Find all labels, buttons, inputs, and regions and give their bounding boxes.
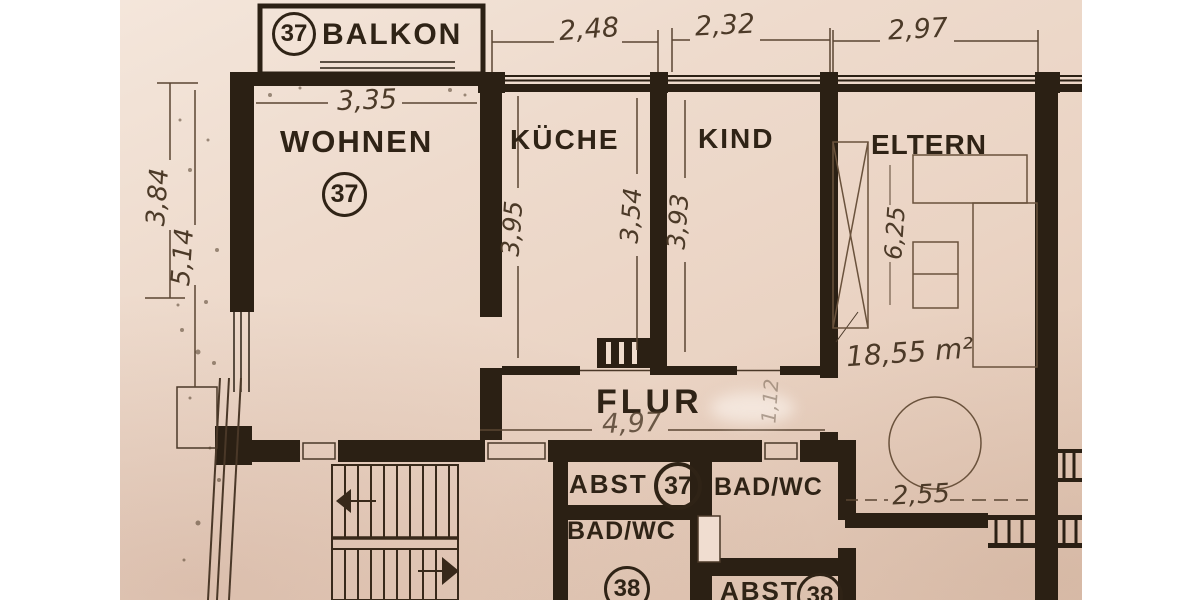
stair-arrow-down (442, 557, 459, 585)
room-label-eltern: ELTERN (871, 129, 987, 161)
room-label-badwc37: BAD/WC (714, 473, 823, 502)
dim-kind-depth: 3,93 (661, 181, 696, 263)
dim-flur-length: 4,97 (597, 407, 666, 440)
abst37-unit-badge: 37 (654, 462, 702, 510)
kitchen-sink-symbol (597, 338, 653, 368)
room-label-kueche: KÜCHE (510, 124, 620, 156)
staircase (332, 465, 459, 600)
bed (973, 203, 1037, 367)
room-label-badwc38: BAD/WC (567, 517, 676, 546)
room-label-kind: KIND (698, 123, 774, 155)
scanned-paper: 37 BALKON WOHNEN 37 KÜCHE KIND ELTERN FL… (120, 0, 1082, 600)
dim-wohnen-width: 3,35 (331, 84, 402, 117)
floorplan-photo: 37 BALKON WOHNEN 37 KÜCHE KIND ELTERN FL… (0, 0, 1200, 600)
dim-top-eltern: 2,97 (885, 12, 951, 46)
balkon-label: BALKON (322, 18, 462, 52)
round-table (889, 397, 981, 489)
room-label-abst38: ABST (720, 576, 799, 600)
lower-left-exterior (177, 378, 241, 600)
dim-kueche-right-depth: 3,54 (614, 175, 649, 257)
room-label-abst37: ABST (569, 469, 648, 500)
dim-top-kind: 2,32 (692, 8, 758, 42)
dim-left-full: 5,14 (165, 216, 201, 298)
wohnen-unit-badge: 37 (322, 172, 367, 217)
dim-kueche-depth: 3,95 (495, 188, 530, 270)
dim-eltern-width: 2,55 (891, 479, 950, 512)
furniture (833, 142, 1037, 489)
dim-top-kueche: 2,48 (556, 12, 622, 47)
shelf (913, 155, 1027, 203)
nightstand (913, 242, 958, 308)
balkon-unit-badge: 37 (272, 12, 316, 56)
plan-linework (120, 0, 1082, 600)
dim-eltern-depth: 6,25 (878, 192, 912, 274)
room-label-wohnen: WOHNEN (280, 124, 433, 160)
